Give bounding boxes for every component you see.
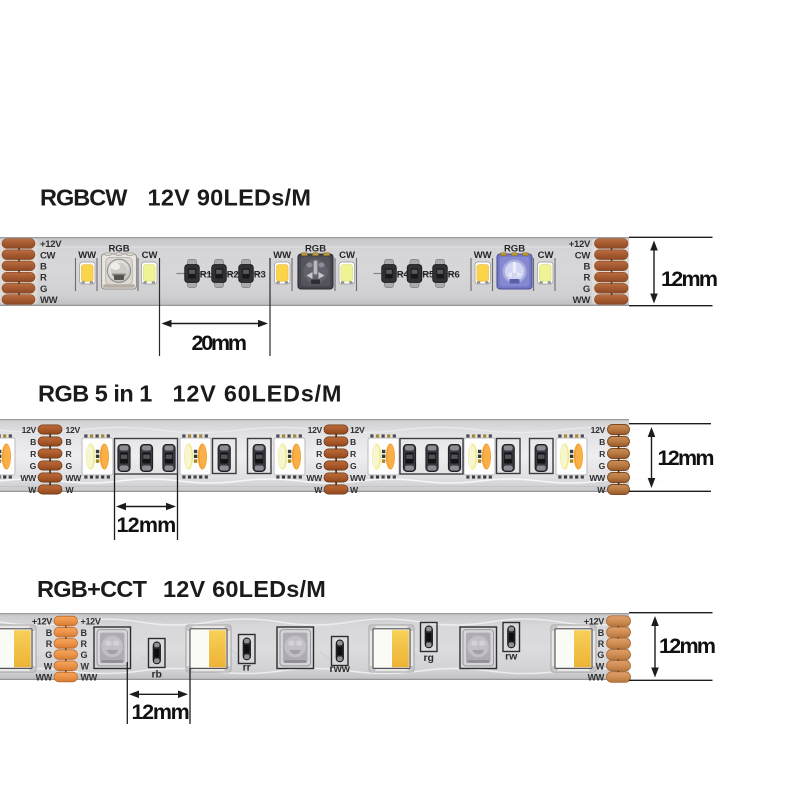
svg-text:G: G xyxy=(350,461,357,471)
svg-text:RGB: RGB xyxy=(108,244,129,255)
svg-text:WW: WW xyxy=(474,250,492,261)
svg-text:12V: 12V xyxy=(591,425,606,435)
svg-text:B: B xyxy=(30,437,36,447)
svg-text:R: R xyxy=(46,639,53,649)
svg-text:G: G xyxy=(583,284,590,295)
svg-text:WW: WW xyxy=(306,473,323,483)
svg-text:WW: WW xyxy=(350,473,367,483)
svg-text:12V: 12V xyxy=(22,425,37,435)
svg-text:WW: WW xyxy=(20,473,37,483)
svg-text:B: B xyxy=(66,437,72,447)
svg-text:RGBCW12V 90LEDs/M: RGBCW12V 90LEDs/M xyxy=(40,185,311,211)
svg-text:B: B xyxy=(40,262,47,273)
svg-text:WW: WW xyxy=(589,473,606,483)
svg-text:W: W xyxy=(314,485,323,495)
svg-text:rg: rg xyxy=(423,652,434,664)
svg-text:CW: CW xyxy=(575,250,591,261)
svg-text:CW: CW xyxy=(142,250,158,261)
svg-text:RGB: RGB xyxy=(504,244,525,255)
svg-text:R2: R2 xyxy=(227,270,239,281)
svg-text:rww: rww xyxy=(329,663,350,675)
svg-text:B: B xyxy=(46,628,53,638)
svg-text:WW: WW xyxy=(78,250,96,261)
svg-text:B: B xyxy=(350,437,356,447)
svg-text:R: R xyxy=(583,273,590,284)
svg-text:W: W xyxy=(66,485,75,495)
svg-text:R6: R6 xyxy=(448,270,460,281)
svg-text:WW: WW xyxy=(81,673,98,683)
svg-text:W: W xyxy=(44,661,53,671)
svg-text:G: G xyxy=(597,650,604,660)
svg-text:W: W xyxy=(81,661,90,671)
svg-text:WW: WW xyxy=(36,673,53,683)
svg-text:WW: WW xyxy=(573,295,591,306)
svg-text:W: W xyxy=(597,485,606,495)
svg-text:W: W xyxy=(596,661,605,671)
svg-text:WW: WW xyxy=(588,673,605,683)
svg-text:12V: 12V xyxy=(350,425,365,435)
svg-text:rw: rw xyxy=(505,651,518,663)
svg-text:G: G xyxy=(81,650,88,660)
svg-text:12mm: 12mm xyxy=(659,634,715,658)
svg-text:G: G xyxy=(45,650,52,660)
svg-text:W: W xyxy=(350,485,359,495)
svg-text:+12V: +12V xyxy=(584,617,604,627)
svg-text:12mm: 12mm xyxy=(132,700,189,724)
svg-text:12mm: 12mm xyxy=(661,267,717,291)
svg-text:+12V: +12V xyxy=(81,617,101,627)
svg-text:B: B xyxy=(583,262,590,273)
svg-text:WW: WW xyxy=(66,473,83,483)
svg-text:CW: CW xyxy=(40,250,56,261)
svg-text:CW: CW xyxy=(538,250,554,261)
svg-text:B: B xyxy=(316,437,322,447)
svg-text:B: B xyxy=(81,628,88,638)
svg-text:R: R xyxy=(40,273,47,284)
svg-text:CW: CW xyxy=(339,250,355,261)
svg-text:R: R xyxy=(81,639,88,649)
svg-text:+12V: +12V xyxy=(32,617,52,627)
svg-text:12V: 12V xyxy=(308,425,323,435)
svg-text:B: B xyxy=(598,628,605,638)
svg-text:B: B xyxy=(599,437,605,447)
svg-text:G: G xyxy=(30,461,37,471)
svg-text:G: G xyxy=(66,461,73,471)
svg-text:+12V: +12V xyxy=(40,239,62,250)
svg-text:R1: R1 xyxy=(200,270,213,281)
svg-text:20mm: 20mm xyxy=(192,331,246,355)
svg-text:R: R xyxy=(598,639,605,649)
svg-text:rr: rr xyxy=(243,662,251,674)
svg-text:G: G xyxy=(316,461,323,471)
svg-text:G: G xyxy=(40,284,47,295)
svg-text:RGB+CCT12V 60LEDs/M: RGB+CCT12V 60LEDs/M xyxy=(37,576,326,602)
svg-text:RGB: RGB xyxy=(305,244,326,255)
svg-text:rb: rb xyxy=(151,669,162,681)
svg-text:R3: R3 xyxy=(254,270,266,281)
svg-text:WW: WW xyxy=(40,295,58,306)
svg-text:W: W xyxy=(28,485,37,495)
svg-text:WW: WW xyxy=(273,250,291,261)
svg-text:12mm: 12mm xyxy=(117,513,176,537)
svg-text:12V: 12V xyxy=(66,425,81,435)
svg-text:RGB 5 in 112V 60LEDs/M: RGB 5 in 112V 60LEDs/M xyxy=(38,381,342,407)
svg-text:+12V: +12V xyxy=(569,239,591,250)
svg-text:G: G xyxy=(599,461,606,471)
svg-text:12mm: 12mm xyxy=(658,446,714,470)
